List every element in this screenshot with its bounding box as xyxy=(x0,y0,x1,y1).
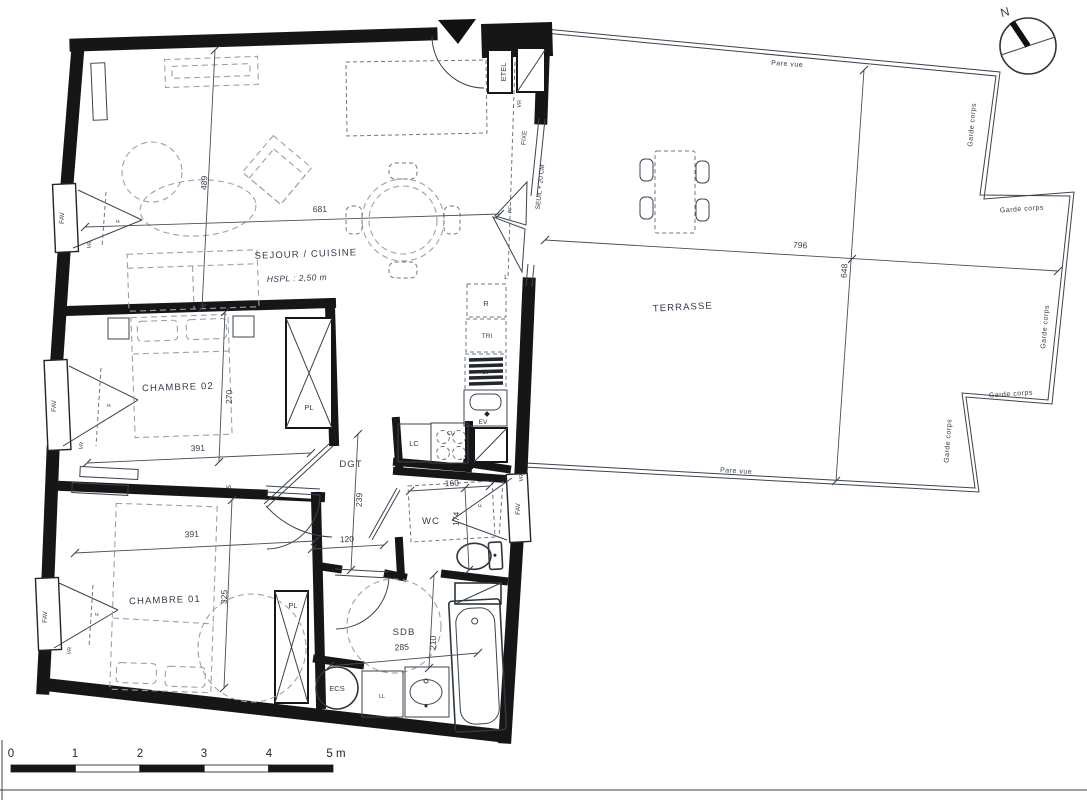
scale-bar: 0 1 2 3 4 5 m xyxy=(8,748,346,772)
vr-label-5: VR xyxy=(519,474,526,482)
dim-sdb-l: 285 xyxy=(394,642,409,653)
chambre02-label: CHAMBRE 02 xyxy=(142,381,214,394)
window-fav-1: FAV F VR xyxy=(53,184,142,253)
dim-ch01-w: 325 xyxy=(219,589,229,604)
chambre01-label: CHAMBRE 01 xyxy=(129,594,201,607)
f-label-2: F xyxy=(107,403,113,407)
l-label: L xyxy=(504,274,508,281)
sdb-label: SDB xyxy=(393,627,416,638)
pl-bas-label: PL xyxy=(288,601,297,610)
bed-02 xyxy=(131,314,232,437)
dim-sejour-w: 489 xyxy=(199,175,210,190)
garde-corps-1: Garde corps xyxy=(967,103,978,147)
sink-label: EV xyxy=(479,419,488,426)
garde-corps-3: Garde corps xyxy=(1040,305,1051,349)
dishwasher-label: LV xyxy=(482,369,490,376)
kitchen: R TRI LV EV LC CU xyxy=(398,284,507,463)
cooktop xyxy=(431,423,468,463)
pare-vue-bas: Pare vue xyxy=(720,467,752,476)
chair xyxy=(444,206,460,234)
fav-label-1: FAV xyxy=(59,211,66,223)
bathtub xyxy=(449,599,507,732)
compass-needle-icon xyxy=(1012,22,1028,46)
dimension-lines: 681 489 391 270 391 325 5 239 120 160 xyxy=(71,46,1062,692)
closet-pl-bas: PL xyxy=(275,591,308,703)
vr-label-4: VR xyxy=(66,647,73,656)
north-label: N xyxy=(999,4,1011,20)
terrace-chair xyxy=(696,161,709,183)
f-label-4: F xyxy=(478,503,485,508)
armchair xyxy=(242,136,311,205)
scale-1: 1 xyxy=(72,748,78,760)
chambre02-furniture xyxy=(108,314,254,437)
tri-label: TRI xyxy=(482,333,493,340)
scale-3: 3 xyxy=(201,748,207,760)
garde-corps-2: Garde corps xyxy=(1000,204,1044,214)
chair xyxy=(389,262,417,278)
dim-wc-l: 160 xyxy=(444,478,459,489)
fridge-label: R xyxy=(483,299,489,308)
wall-radiator xyxy=(80,466,138,479)
dim-ch02-w: 270 xyxy=(224,389,234,404)
terrace-outline xyxy=(524,29,1074,492)
f-label-1: F xyxy=(116,219,122,223)
dgt-label: DGT xyxy=(339,459,362,470)
nightstand xyxy=(108,318,129,339)
fav-label-3: FAV xyxy=(42,610,49,622)
sink-drain xyxy=(484,411,490,417)
entry-zone xyxy=(346,60,487,136)
terrace-table xyxy=(655,151,695,233)
hspl-label: HSPL : 2,50 m xyxy=(267,272,328,284)
dim-cloison: 5 xyxy=(226,485,233,489)
etel-label: ETEL xyxy=(499,63,508,82)
scale-4: 4 xyxy=(266,748,273,760)
f-label-3: F xyxy=(95,612,101,616)
dim-sdb-w: 210 xyxy=(428,635,438,650)
sejour-label: SEJOUR / CUISINE xyxy=(254,247,357,262)
scale-5m: 5 m xyxy=(326,748,345,760)
pare-vue-haut: Pare vue xyxy=(771,60,803,69)
compass: N xyxy=(999,4,1056,74)
vr-label-3: VR xyxy=(78,442,85,451)
sideboard xyxy=(165,56,259,87)
entry-arrow-icon xyxy=(438,19,476,44)
fav-label-4: FAV xyxy=(515,502,522,514)
pf-label: PF xyxy=(508,205,515,213)
sink-basin xyxy=(470,394,501,410)
window-fav-4: FAV F VR xyxy=(452,473,531,542)
nightstand xyxy=(233,316,254,337)
terrace-chair xyxy=(640,197,653,219)
radiator xyxy=(91,63,107,121)
scale-0: 0 xyxy=(8,748,14,760)
dim-wc-w: 174 xyxy=(451,511,462,526)
scale-2: 2 xyxy=(137,748,143,760)
fixe-label: FIXE xyxy=(520,130,529,146)
lc-label: LC xyxy=(409,439,419,448)
floor-plan-drawing: ETEL VR FIXE SEUIL + 20 CM PF L FAV F VR… xyxy=(0,0,1087,800)
window-fav-3: FAV F VR xyxy=(35,578,118,656)
floor-plan: ETEL VR FIXE SEUIL + 20 CM PF L FAV F VR… xyxy=(0,0,1087,800)
vr-label-2: VR xyxy=(86,241,93,250)
terrace-chair xyxy=(640,159,653,181)
seuil-label: SEUIL + 20 CM xyxy=(535,164,547,210)
window-fav-2: FAV F VR xyxy=(44,360,138,451)
dim-terrasse-l: 796 xyxy=(793,240,808,251)
chair xyxy=(389,163,417,179)
sdb-fixtures: ECS LL xyxy=(316,579,506,732)
terrasse-label: TERRASSE xyxy=(653,300,714,314)
ecs-label: ECS xyxy=(329,684,344,693)
chambre01-furniture xyxy=(72,466,306,702)
fav-label-2: FAV xyxy=(51,399,58,411)
closet-pl-haut: PL xyxy=(286,318,332,428)
wc-label: WC xyxy=(422,516,440,527)
vr-label-1: VR xyxy=(517,100,524,108)
terrace-chair xyxy=(696,199,709,221)
dim-ch02-l: 391 xyxy=(191,443,206,454)
pl-haut-label: PL xyxy=(304,403,313,412)
dim-dgt-l: 239 xyxy=(354,492,364,507)
dim-dgt-w: 120 xyxy=(340,534,355,544)
dim-sejour-l: 681 xyxy=(313,204,328,214)
dim-ch01-l: 391 xyxy=(184,529,199,540)
chair xyxy=(346,206,362,234)
turning-circle xyxy=(347,579,441,673)
dim-terrasse-w: 648 xyxy=(839,263,850,278)
toilet xyxy=(456,542,502,571)
ll-label: LL xyxy=(379,694,385,700)
cooktop-label: CU xyxy=(447,431,455,437)
terrace-furniture xyxy=(640,151,709,233)
garde-corps-5: Garde corps xyxy=(943,419,953,463)
dining-table xyxy=(362,179,444,261)
